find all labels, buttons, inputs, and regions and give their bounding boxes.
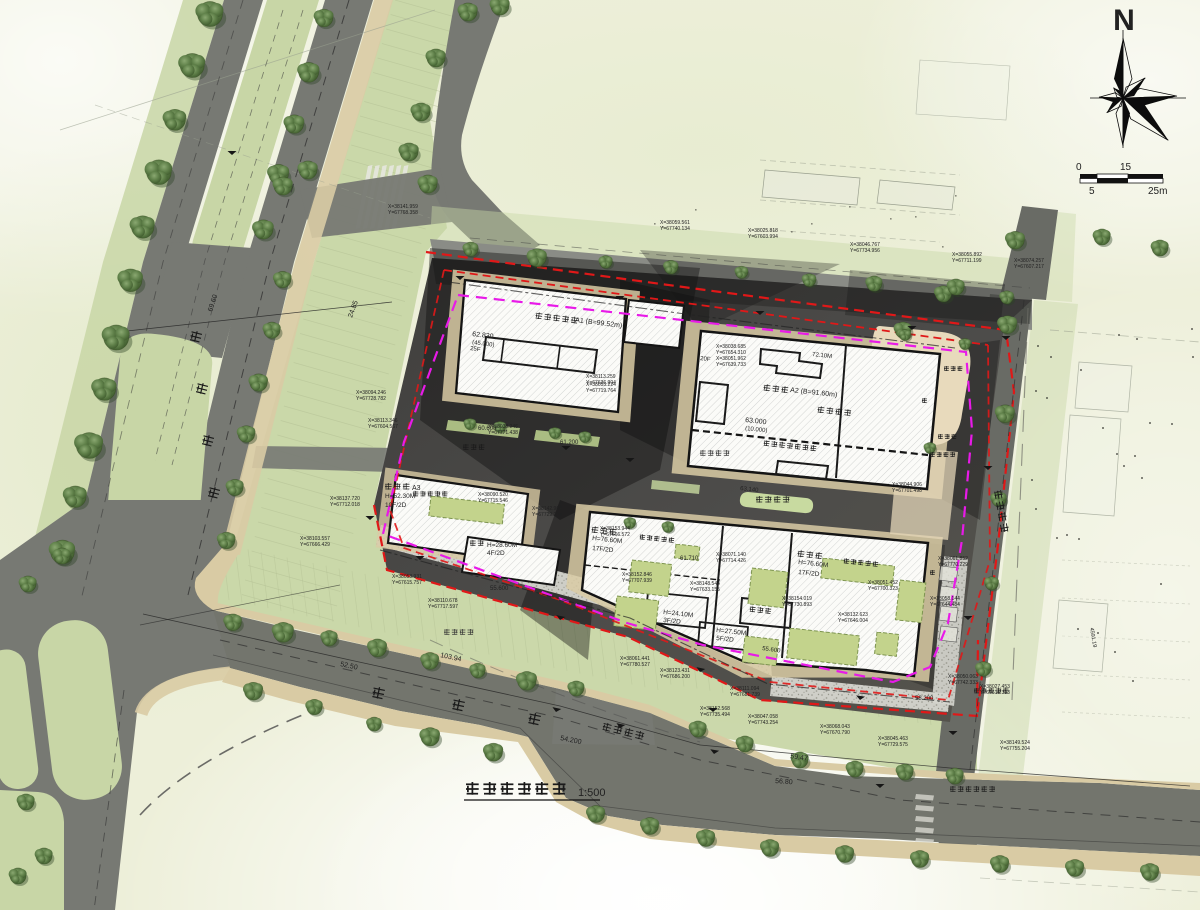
svg-text:X=38061.441: X=38061.441 [620,656,650,662]
svg-text:X=38132.623: X=38132.623 [838,612,868,618]
svg-text:Y=67770.229: Y=67770.229 [938,562,968,568]
svg-text:X=38061.852: X=38061.852 [938,556,968,562]
svg-text:X=38074.257: X=38074.257 [1014,258,1044,264]
svg-text:15: 15 [1120,162,1132,173]
svg-text:Y=67701.498: Y=67701.498 [892,488,922,494]
svg-text:Y=67666.572: Y=67666.572 [600,532,630,538]
svg-text:Y=67729.253: Y=67729.253 [532,512,562,518]
svg-text:X=38113.346: X=38113.346 [368,418,398,424]
svg-text:61.200: 61.200 [560,440,579,446]
svg-text:X=38123.431: X=38123.431 [660,668,690,674]
svg-text:Y=67734.956: Y=67734.956 [850,248,880,254]
svg-text:X=38050.063: X=38050.063 [948,674,978,680]
svg-text:Y=67729.575: Y=67729.575 [878,742,908,748]
svg-text:X=38103.557: X=38103.557 [300,536,330,542]
svg-text:Y=67707.939: Y=67707.939 [622,578,652,584]
svg-text:55.600: 55.600 [490,586,509,592]
svg-text:Y=67615.757: Y=67615.757 [392,580,422,586]
svg-text:X=38051.962: X=38051.962 [716,356,746,362]
svg-text:X=38137.720: X=38137.720 [330,496,360,502]
svg-text:N: N [1113,4,1135,37]
svg-text:X=38142.964: X=38142.964 [532,506,562,512]
svg-text:X=38051.452: X=38051.452 [868,580,898,586]
svg-text:25m: 25m [1148,186,1167,197]
svg-text:5: 5 [1089,186,1095,197]
svg-text:Y=67639.733: Y=67639.733 [716,362,746,368]
svg-text:Y=67742.333: Y=67742.333 [948,680,978,686]
svg-text:4F/2D: 4F/2D [487,550,505,557]
svg-text:X=38149.524: X=38149.524 [1000,740,1030,746]
svg-text:X=38154.019: X=38154.019 [782,596,812,602]
svg-text:X=38152.846: X=38152.846 [622,572,652,578]
svg-text:X=38046.767: X=38046.767 [850,242,880,248]
svg-text:X=38025.818: X=38025.818 [748,228,778,234]
svg-text:Y=67644.484: Y=67644.484 [930,602,960,608]
svg-text:Y=67735.494: Y=67735.494 [700,712,730,718]
svg-text:X=38055.892: X=38055.892 [952,252,982,258]
svg-text:Y=67717.597: Y=67717.597 [428,604,458,610]
svg-text:X=38027.453: X=38027.453 [980,684,1010,690]
svg-text:X=38148.544: X=38148.544 [690,581,720,587]
svg-text:Y=67743.254: Y=67743.254 [748,720,778,726]
svg-text:X=38111.094: X=38111.094 [730,686,759,692]
svg-text:Y=67711.199: Y=67711.199 [952,258,982,264]
svg-text:Y=67646.004: Y=67646.004 [838,618,868,624]
svg-text:X=38068.043: X=38068.043 [820,724,850,730]
svg-text:Y=67730.893: Y=67730.893 [782,602,812,608]
svg-text:10F/2D: 10F/2D [385,502,407,509]
svg-text:X=38071.140: X=38071.140 [716,552,746,558]
svg-text:Y=67715.546: Y=67715.546 [478,498,508,504]
svg-text:61.710: 61.710 [680,556,699,562]
svg-text:Y=67780.527: Y=67780.527 [620,662,650,668]
svg-text:Y=67714.426: Y=67714.426 [716,558,746,564]
svg-text:X=38153.944: X=38153.944 [600,526,630,532]
svg-text:20F: 20F [700,356,711,363]
svg-text:Y=67607.217: Y=67607.217 [1014,264,1044,270]
svg-text:X=38141.959: X=38141.959 [388,204,418,210]
svg-text:X=38113.259: X=38113.259 [586,374,616,380]
svg-text:Y=67700.323: Y=67700.323 [868,586,898,592]
svg-text:X=38038.685: X=38038.685 [716,344,746,350]
svg-text:Y=67681.739: Y=67681.739 [730,692,760,698]
svg-text:Y=67712.018: Y=67712.018 [330,502,360,508]
svg-text:X=38055.224: X=38055.224 [586,382,616,388]
svg-text:Y=67616.333: Y=67616.333 [980,690,1010,696]
svg-text:Y=67633.155: Y=67633.155 [690,587,720,593]
svg-text:H=28.60M: H=28.60M [487,542,517,549]
svg-text:A3: A3 [412,485,421,492]
svg-text:X=38044.906: X=38044.906 [892,482,922,488]
svg-text:Y=67728.782: Y=67728.782 [356,396,386,402]
svg-text:0: 0 [1076,162,1082,173]
svg-text:Y=67740.134: Y=67740.134 [660,226,690,232]
svg-text:H=52.30M: H=52.30M [385,493,415,500]
svg-text:58.200: 58.200 [915,696,934,702]
svg-text:1:500: 1:500 [578,787,606,799]
svg-text:X=38053.931: X=38053.931 [392,574,422,580]
svg-text:X=38094.246: X=38094.246 [356,390,386,396]
svg-text:Y=67603.994: Y=67603.994 [748,234,778,240]
svg-text:Y=67768.358: Y=67768.358 [388,210,418,216]
svg-text:X=38047.058: X=38047.058 [748,714,778,720]
svg-text:Y=67719.764: Y=67719.764 [586,388,616,394]
svg-text:X=38038.246: X=38038.246 [488,424,518,430]
svg-text:X=38059.561: X=38059.561 [660,220,690,226]
svg-text:Y=67670.790: Y=67670.790 [820,730,850,736]
svg-text:56.80: 56.80 [775,778,793,786]
svg-text:X=38058.144: X=38058.144 [930,596,960,602]
svg-text:Y=67686.200: Y=67686.200 [660,674,690,680]
svg-text:Y=67755.204: Y=67755.204 [1000,746,1030,752]
svg-text:X=38045.463: X=38045.463 [878,736,908,742]
svg-text:X=38110.678: X=38110.678 [428,598,458,604]
svg-text:Y=67771.438: Y=67771.438 [488,430,518,436]
svg-text:Y=67604.567: Y=67604.567 [368,424,398,430]
svg-text:Y=67666.429: Y=67666.429 [300,542,330,548]
svg-text:X=38090.520: X=38090.520 [478,492,508,498]
